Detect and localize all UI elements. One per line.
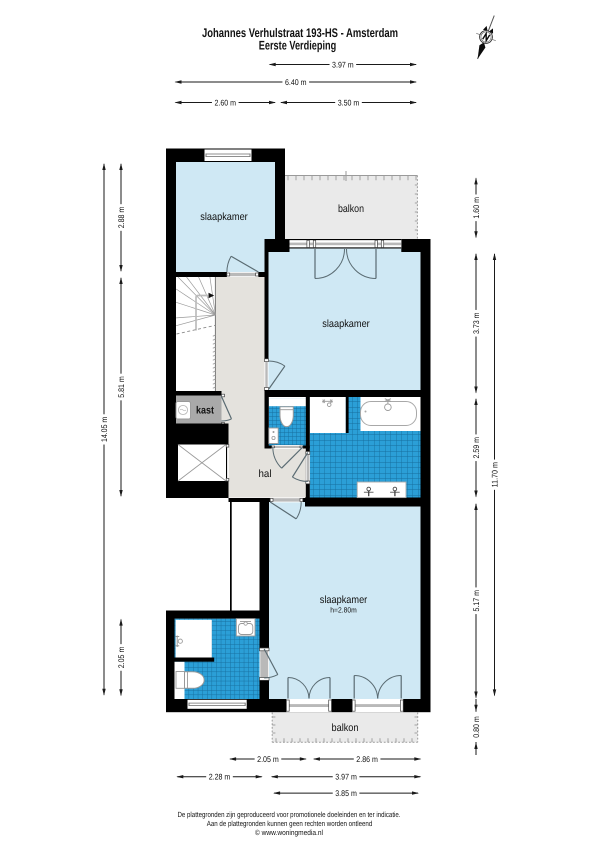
svg-text:2.59 m: 2.59 m <box>472 437 481 459</box>
svg-text:1.60 m: 1.60 m <box>472 197 481 219</box>
svg-text:2.88 m: 2.88 m <box>117 207 126 229</box>
svg-text:balkon: balkon <box>338 203 364 215</box>
svg-text:0.80 m: 0.80 m <box>472 716 481 738</box>
svg-text:slaapkamer: slaapkamer <box>200 211 248 223</box>
svg-text:3.85 m: 3.85 m <box>335 789 357 798</box>
svg-text:balkon: balkon <box>332 722 359 734</box>
svg-text:De plattegronden zijn geproduc: De plattegronden zijn geproduceerd voor … <box>178 810 401 819</box>
svg-text:14.05 m: 14.05 m <box>100 417 109 442</box>
svg-text:3.97 m: 3.97 m <box>335 773 357 782</box>
svg-text:2.60 m: 2.60 m <box>214 98 236 107</box>
svg-text:h=2.80m: h=2.80m <box>330 606 357 615</box>
svg-text:2.05 m: 2.05 m <box>257 755 279 764</box>
svg-text:11.70 m: 11.70 m <box>490 462 499 487</box>
svg-text:2.28 m: 2.28 m <box>209 773 231 782</box>
svg-text:slaapkamer: slaapkamer <box>322 318 370 330</box>
svg-text:6.40 m: 6.40 m <box>285 78 307 87</box>
svg-text:© www.woningmedia.nl: © www.woningmedia.nl <box>255 828 323 837</box>
svg-text:3.73 m: 3.73 m <box>472 312 481 334</box>
svg-text:slaapkamer: slaapkamer <box>320 594 368 606</box>
svg-text:3.97 m: 3.97 m <box>332 60 354 69</box>
svg-text:5.17 m: 5.17 m <box>472 590 481 612</box>
svg-text:Aan de plattegronden kunnen ge: Aan de plattegronden kunnen geen rechten… <box>207 819 373 828</box>
svg-text:Eerste Verdieping: Eerste Verdieping <box>259 39 337 53</box>
svg-text:2.86 m: 2.86 m <box>356 755 378 764</box>
svg-text:2.05 m: 2.05 m <box>117 646 126 668</box>
svg-text:5.81 m: 5.81 m <box>117 376 126 398</box>
svg-text:kast: kast <box>196 405 214 417</box>
svg-text:3.50 m: 3.50 m <box>338 98 360 107</box>
svg-text:hal: hal <box>259 468 272 480</box>
